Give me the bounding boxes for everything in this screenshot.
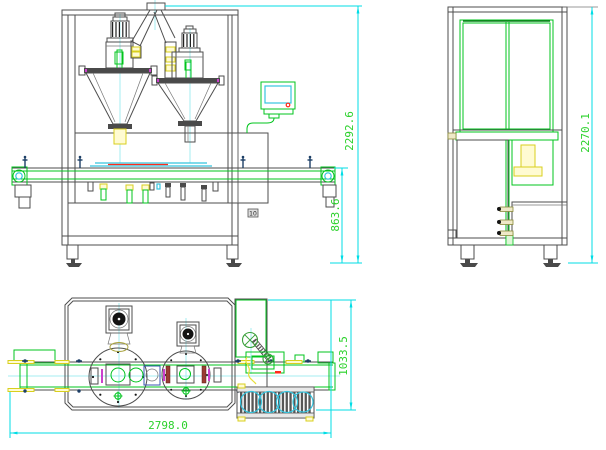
sv-mid-shelf bbox=[448, 130, 562, 140]
fv-filler-right bbox=[172, 26, 203, 82]
sv-lower-section bbox=[457, 140, 567, 245]
cad-canvas: 10 2292.6 863.6 bbox=[0, 0, 606, 450]
front-view: 10 2292.6 863.6 bbox=[12, 0, 362, 267]
fv-monitor bbox=[247, 82, 295, 133]
dim-front-overall-height: 2292.6 bbox=[343, 111, 356, 151]
sv-arm-mount bbox=[521, 145, 535, 167]
tv-roller-table bbox=[237, 384, 314, 421]
sv-hinges bbox=[497, 207, 513, 236]
tv-motor-right bbox=[177, 322, 199, 353]
fv-hopper-right bbox=[152, 76, 224, 142]
top-view: 2798.0 1033.5 bbox=[8, 298, 356, 438]
tv-line-components bbox=[91, 366, 221, 401]
dim-top-overall-depth: 1033.5 bbox=[337, 336, 350, 376]
panel-tag-label: 10 bbox=[249, 211, 257, 218]
side-view: 2270.1 bbox=[448, 7, 598, 267]
fv-hopper-left bbox=[79, 66, 157, 144]
dim-side-overall-height: 2270.1 bbox=[579, 113, 592, 153]
dim-top-overall-width: 2798.0 bbox=[148, 419, 188, 432]
dim-front-conveyor-height: 863.6 bbox=[329, 198, 342, 231]
monitor-arm bbox=[247, 118, 274, 133]
sv-dim-overall-height: 2270.1 bbox=[563, 7, 598, 263]
fv-y-duct bbox=[131, 10, 176, 78]
fv-bottle-tools bbox=[88, 182, 218, 203]
fv-frame bbox=[62, 3, 242, 267]
fv-panel-tag: 10 bbox=[248, 209, 258, 218]
sv-upper-enclosure bbox=[460, 20, 553, 132]
cad-drawing-stage: 10 2292.6 863.6 bbox=[0, 0, 606, 450]
power-led-icon bbox=[286, 103, 290, 107]
fv-conveyor bbox=[12, 156, 336, 208]
